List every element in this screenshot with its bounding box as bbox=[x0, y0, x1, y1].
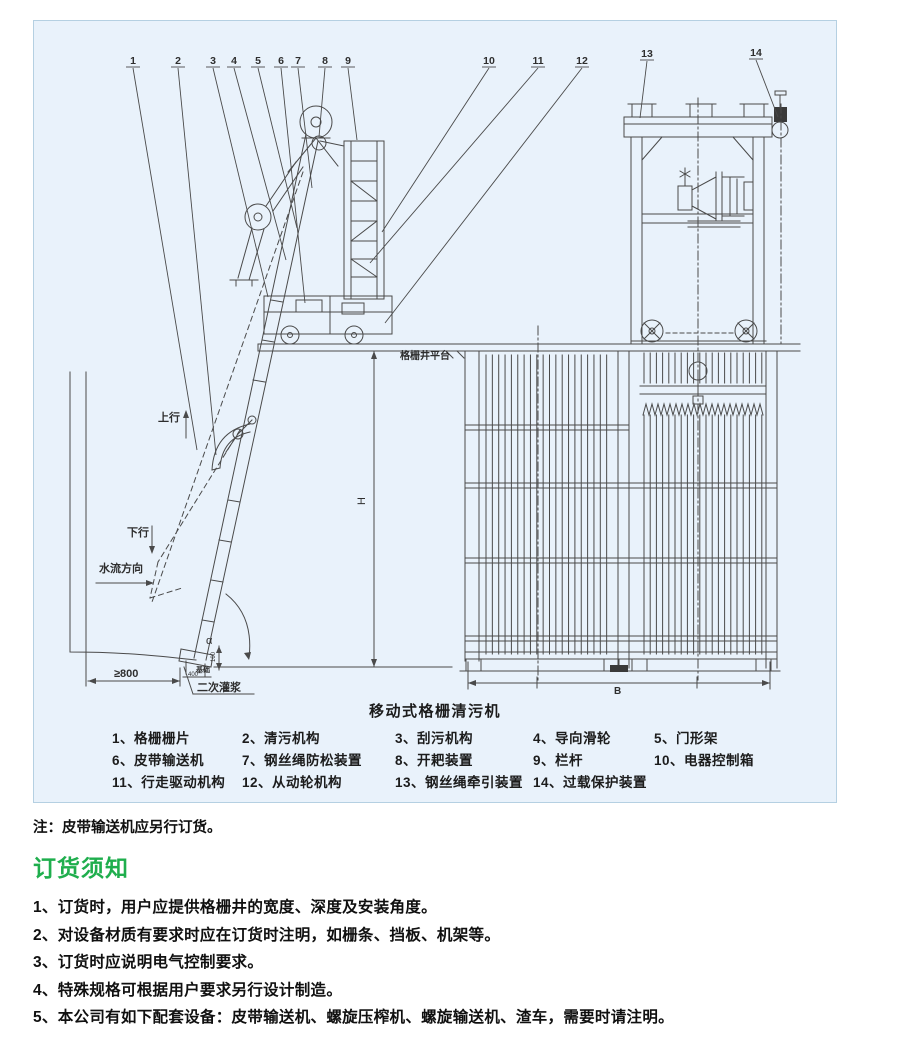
note-text: 注：皮带输送机应另行订货。 bbox=[33, 816, 222, 837]
order-instruction: 3、订货时应说明电气控制要求。 bbox=[33, 949, 893, 977]
order-instruction: 4、特殊规格可根据用户要求另行设计制造。 bbox=[33, 977, 893, 1005]
legend-item: 11、行走驱动机构 bbox=[112, 771, 242, 793]
legend-item: 10、电器控制箱 bbox=[654, 749, 802, 771]
legend-item: 9、栏杆 bbox=[533, 749, 654, 771]
order-instructions-list: 1、订货时，用户应提供格栅井的宽度、深度及安装角度。2、对设备材质有要求时应在订… bbox=[33, 894, 893, 1032]
order-instruction: 5、本公司有如下配套设备：皮带输送机、螺旋压榨机、螺旋输送机、渣车，需要时请注明… bbox=[33, 1004, 893, 1032]
order-instruction: 1、订货时，用户应提供格栅井的宽度、深度及安装角度。 bbox=[33, 894, 893, 922]
legend-item: 7、钢丝绳防松装置 bbox=[242, 749, 395, 771]
order-instruction: 2、对设备材质有要求时应在订货时注明，如栅条、挡板、机架等。 bbox=[33, 922, 893, 950]
drawing-title: 移动式格栅清污机 bbox=[33, 700, 837, 721]
legend-item: 4、导向滑轮 bbox=[533, 727, 654, 749]
parts-legend: 1、格栅栅片2、清污机构3、刮污机构4、导向滑轮5、门形架6、皮带输送机7、钢丝… bbox=[112, 727, 802, 792]
legend-item: 2、清污机构 bbox=[242, 727, 395, 749]
legend-item: 1、格栅栅片 bbox=[112, 727, 242, 749]
order-section-heading: 订货须知 bbox=[33, 849, 129, 883]
diagram-panel bbox=[33, 20, 837, 803]
legend-item: 14、过载保护装置 bbox=[533, 771, 654, 793]
legend-item: 6、皮带输送机 bbox=[112, 749, 242, 771]
legend-item: 8、开耙装置 bbox=[395, 749, 533, 771]
legend-item: 13、钢丝绳牵引装置 bbox=[395, 771, 533, 793]
legend-item: 12、从动轮机构 bbox=[242, 771, 395, 793]
legend-item: 3、刮污机构 bbox=[395, 727, 533, 749]
legend-item: 5、门形架 bbox=[654, 727, 802, 749]
